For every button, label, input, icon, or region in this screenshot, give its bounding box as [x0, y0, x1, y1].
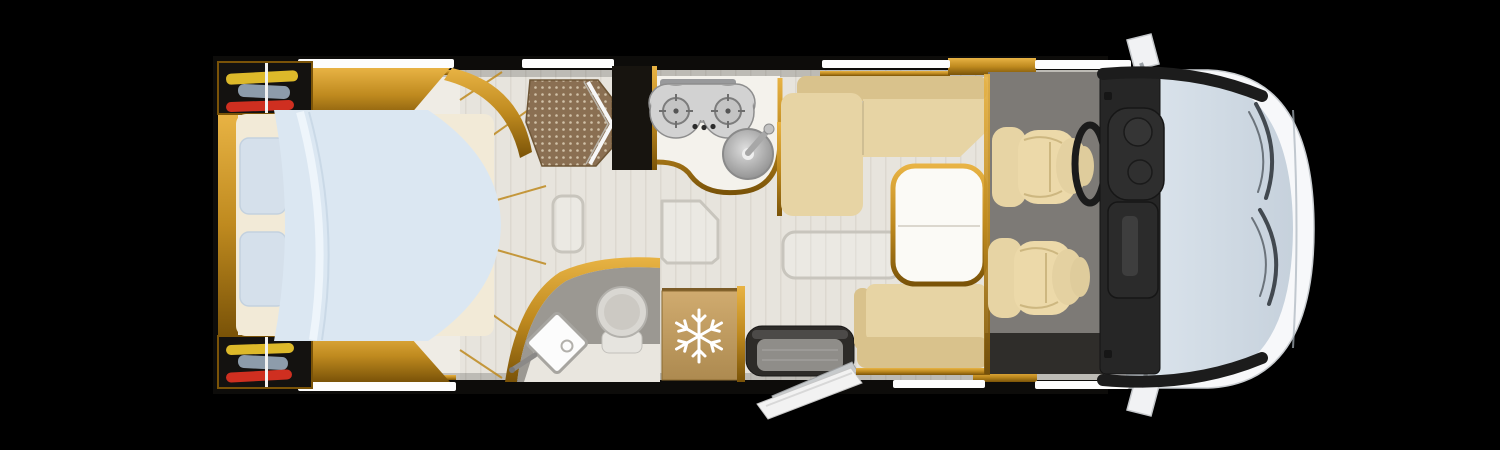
wall-lining [820, 71, 950, 76]
side-step-dark [985, 333, 1103, 374]
hob-knob [701, 125, 706, 130]
fridge-divider [737, 286, 745, 382]
hob-knob [710, 124, 715, 129]
window-bed-bottom [298, 382, 456, 391]
hob-knob [692, 124, 697, 129]
pillow-top [240, 138, 286, 214]
bench-plinth [856, 368, 990, 375]
pillow-bottom [240, 232, 286, 306]
dinette-table [893, 166, 985, 284]
wardrobe-top [218, 62, 312, 114]
bench-cushion [866, 284, 987, 342]
floor-hatch-3 [783, 232, 901, 278]
bench-back [857, 337, 988, 368]
tall-cabinet [612, 66, 654, 170]
center-console-vent [1122, 216, 1138, 276]
sofa-chaise [781, 93, 863, 216]
floor-hatch-2 [662, 201, 718, 263]
bench-seat [854, 284, 990, 375]
refrigerator [662, 286, 745, 382]
floor-threshold [984, 74, 990, 374]
garment-blue [238, 84, 291, 100]
entry-step-mat [757, 339, 843, 371]
window-lounge-bottom [893, 380, 985, 388]
floor-hatch-1 [553, 196, 583, 252]
garment-blue [238, 355, 289, 371]
headboard [218, 114, 238, 336]
shower-room [526, 66, 657, 170]
hanging-rod [265, 337, 268, 387]
window-bed-top [298, 59, 454, 68]
motorhome-floorplan [0, 0, 1500, 450]
window-shower-top [522, 59, 614, 68]
dashboard [1100, 74, 1164, 374]
wardrobe-bottom [218, 336, 312, 388]
hanging-rod [265, 63, 268, 113]
shower-tray [526, 80, 612, 166]
window-lounge-top [822, 60, 950, 68]
floorplan-canvas [0, 0, 1500, 450]
entry-step-edge [752, 330, 848, 339]
sofa-seat [863, 99, 987, 157]
toilet [597, 287, 647, 353]
